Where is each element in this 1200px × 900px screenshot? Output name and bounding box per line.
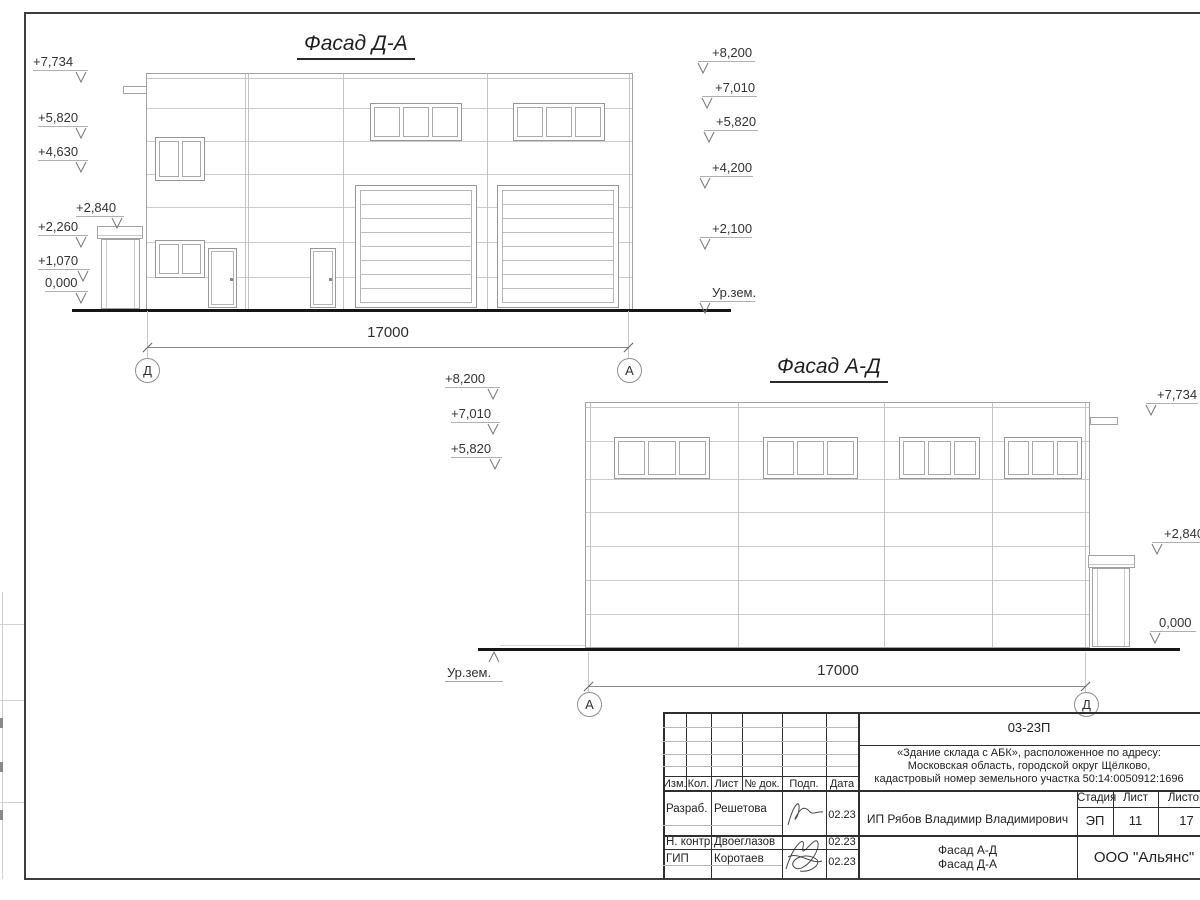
role-date: 02.23: [826, 856, 858, 868]
column-joint-line: [884, 403, 885, 647]
titleblock-row-line: [663, 754, 858, 755]
parapet-line: [586, 407, 1089, 408]
titleblock-line: [826, 712, 827, 879]
elevation-mark-value: 0,000: [45, 275, 78, 290]
door-handle: [329, 278, 332, 281]
role-date: 02.23: [826, 836, 858, 848]
stage-value: ЭП: [1077, 813, 1113, 828]
dimension-line: [147, 347, 628, 348]
window-pane: [182, 141, 202, 177]
facade-2-dimension-label: 17000: [788, 662, 888, 679]
client-name: ИП Рябов Владимир Владимирович: [860, 812, 1075, 826]
elevation-arrow-icon: [1145, 404, 1157, 416]
elevation-mark-value: +1,070: [38, 253, 78, 268]
role-date: 02.23: [826, 809, 858, 821]
window-pane: [767, 441, 794, 475]
garage-door-slats: [360, 190, 472, 303]
panel-joint-line: [586, 479, 1089, 480]
panel-joint-line: [586, 580, 1089, 581]
window: [614, 437, 710, 479]
column-header-data: Дата: [826, 778, 858, 790]
elevation-mark-value: +5,820: [38, 110, 78, 125]
window: [763, 437, 858, 479]
elevation-arrow-icon: [697, 62, 709, 74]
window-glazing: [517, 107, 601, 137]
door: [310, 248, 336, 308]
titleblock-row-line: [663, 741, 858, 742]
elevation-arrow-icon: [1149, 632, 1161, 644]
drawing-sheet: Фасад Д-А Фасад А-Д 17000 17000 Д А А Д …: [0, 0, 1200, 900]
window-glazing: [159, 141, 201, 177]
elevation-arrow-icon: [75, 161, 87, 173]
margin-strip-text-fragment: [0, 762, 3, 772]
margin-strip-text-fragment: [0, 718, 3, 728]
elevation-mark-value: +7,734: [33, 54, 73, 69]
titleblock-line: [1158, 790, 1159, 835]
elevation-mark-value: +5,820: [451, 441, 491, 456]
column-joint-line: [1085, 403, 1086, 647]
elevation-mark-value: +4,200: [712, 160, 752, 175]
column-header-kol: Кол.: [686, 778, 711, 790]
elevation-mark-value: +8,200: [445, 371, 485, 386]
elevation-mark-value: +4,630: [38, 144, 78, 159]
sheet-code: 03-23П: [858, 720, 1200, 735]
elevation-arrow-icon: [701, 97, 713, 109]
elevation-mark-value: +8,200: [712, 45, 752, 60]
elevation-arrow-icon: [487, 388, 499, 400]
axis-bubble: Д: [135, 358, 160, 383]
window-pane: [159, 244, 179, 274]
elevation-arrow-icon: [703, 131, 715, 143]
sheet-value: 11: [1113, 813, 1158, 828]
window-pane: [546, 107, 572, 137]
column-joint-line: [245, 74, 246, 309]
elevation-arrow-icon: [699, 177, 711, 189]
elevation-arrow-icon: [75, 292, 87, 304]
elevation-arrow-icon: [111, 217, 123, 229]
porch-wall-line: [1124, 569, 1125, 646]
doc-title-line: Фасад А-Д: [860, 843, 1075, 857]
doc-title-line: Фасад Д-А: [860, 857, 1075, 871]
elevation-arrow-icon: [488, 651, 500, 663]
ground-label-underline: [445, 681, 503, 682]
panel-joint-line: [147, 174, 632, 175]
elevation-arrow-icon: [75, 236, 87, 248]
elevation-mark-value: +7,010: [451, 406, 491, 421]
window-pane: [648, 441, 675, 475]
organization-name: ООО "Альянс": [1079, 849, 1200, 866]
titleblock-line: [663, 776, 858, 777]
axis-bubble: А: [617, 358, 642, 383]
ground-level-label: Ур.зем.: [447, 665, 491, 680]
titleblock-row-line: [663, 766, 858, 767]
ground-line: [72, 309, 731, 312]
titleblock-line: [663, 712, 1200, 714]
titleblock-line: [686, 712, 687, 790]
role-name: Решетова: [714, 803, 767, 815]
sheets-label: Листов: [1158, 792, 1200, 804]
titleblock-line: [663, 835, 1200, 837]
window-glazing: [1008, 441, 1078, 475]
column-joint-line: [248, 74, 249, 309]
margin-strip-line: [0, 624, 24, 625]
column-header-ndok: № док.: [742, 778, 782, 790]
titleblock-line: [663, 790, 1200, 792]
window-pane: [827, 441, 854, 475]
role-label: ГИП: [666, 853, 689, 865]
axis-bubble: А: [577, 692, 602, 717]
garage-door: [355, 185, 477, 308]
elevation-mark-value: +2,840: [1164, 526, 1200, 541]
window-glazing: [618, 441, 706, 475]
sheet-label: Лист: [1113, 792, 1158, 804]
frame-bottom: [24, 878, 1200, 880]
window: [1004, 437, 1082, 479]
facade-1-dimension-label: 17000: [338, 324, 438, 341]
sheets-value: 17: [1158, 813, 1200, 828]
window: [155, 240, 205, 278]
window-glazing: [159, 244, 201, 274]
extension-line: [147, 311, 148, 358]
column-joint-line: [487, 74, 488, 309]
facade-2-title: Фасад А-Д: [770, 355, 888, 383]
window-pane: [403, 107, 429, 137]
role-label: Разраб.: [666, 803, 707, 815]
margin-strip-text-fragment: [0, 810, 3, 820]
titleblock-line: [858, 712, 860, 879]
margin-strip-line: [2, 592, 3, 879]
window-glazing: [767, 441, 854, 475]
window: [370, 103, 462, 141]
window: [513, 103, 605, 141]
frame-top: [24, 12, 1200, 14]
window-pane: [679, 441, 706, 475]
column-joint-line: [629, 74, 630, 309]
titleblock-line: [711, 712, 712, 879]
elevation-arrow-icon: [487, 423, 499, 435]
column-joint-line: [590, 403, 591, 647]
elevation-arrow-icon: [75, 71, 87, 83]
window-pane: [575, 107, 601, 137]
column-header-podp: Подп.: [782, 778, 826, 790]
window-pane: [1057, 441, 1078, 475]
signature: [782, 831, 828, 877]
column-header-list: Лист: [711, 778, 742, 790]
column-joint-line: [992, 403, 993, 647]
garage-door-slats: [502, 190, 614, 303]
dimension-line: [588, 686, 1085, 687]
window-glazing: [374, 107, 458, 137]
window: [155, 137, 205, 181]
gutter-outlet: [1090, 417, 1118, 425]
project-address-line: кадастровый номер земельного участка 50:…: [860, 773, 1198, 785]
window-pane: [954, 441, 976, 475]
gutter-outlet: [123, 86, 147, 94]
door-handle: [230, 278, 233, 281]
ground-slope-line: [500, 645, 585, 646]
window-pane: [797, 441, 824, 475]
elevation-mark-value: +7,734: [1157, 387, 1197, 402]
parapet-line: [147, 78, 632, 79]
frame-left: [24, 12, 26, 880]
elevation-mark-value: +2,260: [38, 219, 78, 234]
titleblock-row-line: [663, 727, 858, 728]
garage-door: [497, 185, 619, 308]
elevation-arrow-icon: [699, 302, 711, 314]
window-pane: [903, 441, 925, 475]
porch-wall-line: [106, 240, 107, 308]
elevation-mark-value: +2,100: [712, 221, 752, 236]
window-pane: [928, 441, 950, 475]
column-header-izm: Изм.: [663, 778, 686, 790]
stage-label: Стадия: [1077, 792, 1113, 804]
elevation-mark-value: +5,820: [716, 114, 756, 129]
column-joint-line: [738, 403, 739, 647]
titleblock-line: [1113, 790, 1114, 835]
elevation-mark-value: 0,000: [1159, 615, 1192, 630]
panel-joint-line: [586, 546, 1089, 547]
porch-canopy: [1088, 555, 1135, 568]
titleblock-row-line: [663, 865, 782, 866]
panel-joint-line: [147, 141, 632, 142]
titleblock-line: [782, 712, 783, 879]
titleblock-line: [663, 849, 858, 850]
panel-joint-line: [586, 614, 1089, 615]
titleblock-line: [663, 712, 665, 879]
window-glazing: [903, 441, 976, 475]
window-pane: [1032, 441, 1053, 475]
window-pane: [1008, 441, 1029, 475]
elevation-arrow-icon: [699, 238, 711, 250]
window-pane: [618, 441, 645, 475]
window-pane: [517, 107, 543, 137]
porch-wall-line: [1097, 569, 1098, 646]
window-pane: [374, 107, 400, 137]
titleblock-line: [742, 712, 743, 790]
extension-line: [628, 311, 629, 358]
titleblock-line: [858, 745, 1200, 746]
window-pane: [432, 107, 458, 137]
titleblock-line: [1077, 807, 1200, 808]
elevation-mark-value: +2,840: [76, 200, 116, 215]
margin-strip-line: [0, 700, 24, 701]
titleblock-row-line: [663, 825, 782, 826]
elevation-arrow-icon: [1151, 543, 1163, 555]
window-pane: [159, 141, 179, 177]
elevation-arrow-icon: [75, 127, 87, 139]
elevation-arrow-icon: [489, 458, 501, 470]
porch-canopy-line: [1089, 564, 1134, 565]
facade-1-title: Фасад Д-А: [297, 32, 415, 60]
role-label: Н. контр.: [666, 836, 713, 848]
margin-strip-line: [0, 802, 24, 803]
ground-line: [478, 648, 1180, 651]
project-address-line: Московская область, городской округ Щёлк…: [860, 760, 1198, 772]
porch-canopy-line: [98, 235, 142, 236]
panel-joint-line: [586, 512, 1089, 513]
signature: [784, 793, 826, 833]
porch-wall-line: [134, 240, 135, 308]
role-name: Двоеглазов: [714, 836, 775, 848]
elevation-mark-value: Ур.зем.: [712, 285, 756, 300]
project-address-line: «Здание склада с АБК», расположенное по …: [860, 747, 1198, 759]
elevation-mark-value: +7,010: [715, 80, 755, 95]
elevation-arrow-icon: [77, 270, 89, 282]
role-name: Коротаев: [714, 853, 764, 865]
window: [899, 437, 980, 479]
column-joint-line: [343, 74, 344, 309]
window-pane: [182, 244, 202, 274]
